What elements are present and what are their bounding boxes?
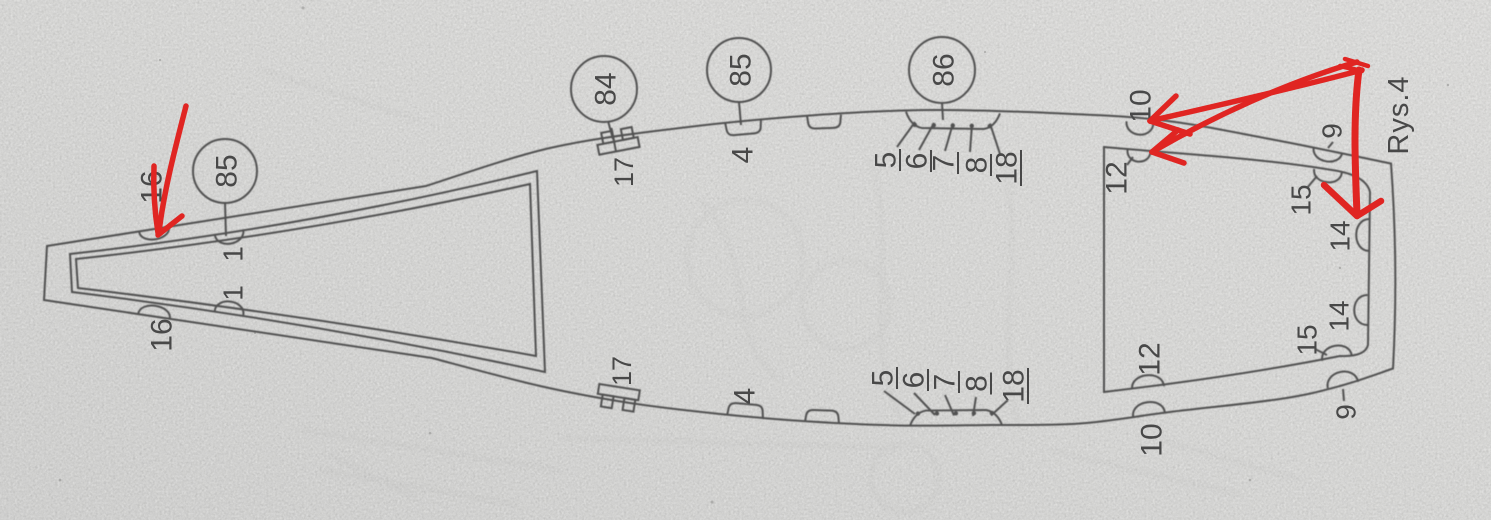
svg-text:12: 12 (1134, 342, 1167, 375)
svg-text:85: 85 (725, 53, 758, 86)
svg-text:84: 84 (590, 72, 623, 105)
svg-text:8: 8 (961, 375, 994, 392)
svg-text:18: 18 (991, 151, 1024, 184)
svg-text:7: 7 (928, 155, 961, 172)
svg-text:9: 9 (1317, 123, 1348, 139)
svg-text:10: 10 (1136, 423, 1169, 456)
svg-text:5: 5 (867, 370, 900, 387)
svg-text:12: 12 (1101, 161, 1134, 194)
svg-text:6: 6 (898, 372, 931, 389)
svg-text:16: 16 (146, 318, 179, 351)
svg-text:18: 18 (998, 369, 1031, 402)
svg-text:7: 7 (929, 374, 962, 391)
svg-text:9: 9 (1331, 404, 1362, 420)
svg-text:1: 1 (218, 285, 249, 301)
svg-text:17: 17 (609, 157, 639, 187)
svg-text:17: 17 (607, 356, 637, 386)
svg-text:86: 86 (928, 53, 961, 86)
svg-text:4: 4 (729, 388, 762, 405)
svg-text:15: 15 (1286, 184, 1317, 215)
svg-text:4: 4 (727, 147, 760, 164)
svg-text:5: 5 (870, 152, 903, 169)
svg-text:Rys.4: Rys.4 (1383, 75, 1415, 154)
svg-text:85: 85 (211, 154, 244, 187)
svg-text:1: 1 (218, 246, 249, 262)
svg-text:15: 15 (1292, 324, 1323, 355)
svg-text:8: 8 (961, 157, 994, 174)
svg-text:14: 14 (1324, 300, 1355, 331)
svg-text:14: 14 (1325, 220, 1356, 251)
